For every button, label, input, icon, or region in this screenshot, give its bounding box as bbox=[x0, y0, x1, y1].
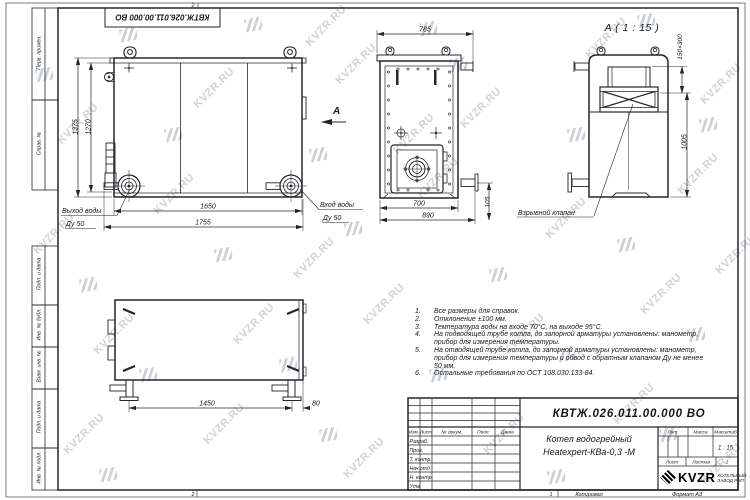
margin-podp1: Подп. и дата bbox=[37, 258, 43, 291]
row-utv: Утв. bbox=[410, 484, 422, 490]
svg-text:A: A bbox=[332, 106, 340, 117]
view-a-title: A ( 1 : 15 ) bbox=[604, 22, 660, 34]
mass-label: Масса bbox=[693, 430, 708, 436]
inlet-label: Вход воды Ду 50 bbox=[300, 189, 363, 223]
product-name-1: Котел водогрейный bbox=[546, 434, 632, 444]
dim-1005: 1005 bbox=[682, 134, 689, 150]
dim-785: 785 bbox=[419, 27, 431, 34]
sight-marks bbox=[394, 126, 442, 140]
svg-text:Вход воды: Вход воды bbox=[320, 201, 355, 209]
col-data: Дата bbox=[500, 430, 514, 436]
row-nachotd: Нач.отд. bbox=[410, 466, 432, 472]
front-view: 1375 1270 1650 1755 Выход воды Ду 50 bbox=[61, 47, 363, 231]
legs bbox=[110, 380, 301, 401]
valve-label: Взрывной клапан bbox=[517, 104, 633, 217]
outlet-label: Выход воды Ду 50 bbox=[61, 189, 130, 229]
row-tkontr: Т. контр. bbox=[410, 457, 432, 463]
sheet-label: Лист bbox=[665, 460, 678, 466]
side-view: 785 700 890 105 bbox=[377, 27, 493, 225]
drawing-sheet: KVZR.RUKVZR.RUKVZR.RUKVZR.RUKVZR.RUKVZR.… bbox=[0, 0, 750, 500]
lifting-lug-icon bbox=[124, 47, 296, 58]
note-item: 2.Отклонение ±100 мм. bbox=[415, 316, 711, 324]
front-dimensions: 1375 1270 1650 1755 bbox=[73, 58, 304, 231]
kvzr-logo-icon bbox=[660, 470, 676, 485]
dim-700: 700 bbox=[413, 201, 425, 208]
margin-perv: Перв. примен. bbox=[37, 35, 43, 69]
view-a: A ( 1 : 15 ) bbox=[517, 22, 691, 217]
note-item: 4.На подводящей трубе котла, до запорной… bbox=[415, 331, 711, 347]
svg-text:Выход воды: Выход воды bbox=[62, 207, 102, 215]
format-label: Формат А3 bbox=[672, 492, 703, 498]
row-nkontr: Н. контр. bbox=[410, 475, 433, 481]
svg-text:Взрывной клапан: Взрывной клапан bbox=[518, 209, 575, 217]
row-prov: Пров. bbox=[410, 448, 424, 454]
top-pipe-stub bbox=[461, 63, 473, 70]
dim-80: 80 bbox=[312, 401, 320, 408]
furnace-door bbox=[391, 145, 447, 193]
margin-inv-podl: Инв. № подл. bbox=[37, 451, 43, 483]
col-list: Лист bbox=[419, 430, 432, 436]
doc-number: КВТЖ.026.011.00.000 ВО bbox=[553, 408, 706, 420]
dim-105: 105 bbox=[485, 196, 492, 207]
margin-podp2: Подп. и дата bbox=[37, 401, 43, 434]
scale-value: 1 : 15 bbox=[718, 446, 734, 452]
view-a-dimensions: 150×300 1005 bbox=[652, 34, 691, 197]
drawing-linework: 2 2 1 Копировал Формат А3 КВТЖ.026.011.0… bbox=[0, 0, 750, 500]
dim-1270: 1270 bbox=[86, 119, 93, 135]
zone-bottom-right: 1 bbox=[550, 492, 553, 498]
dim-150x300: 150×300 bbox=[677, 34, 684, 60]
svg-text:Ду 50: Ду 50 bbox=[322, 215, 341, 222]
svg-text:Ду 50: Ду 50 bbox=[65, 221, 84, 228]
copied-label: Копировал bbox=[575, 492, 602, 498]
bottom-pipe-stub bbox=[461, 179, 475, 187]
col-dok: № докум. bbox=[441, 430, 462, 436]
margin-inv-dubl: Инв. № дубл. bbox=[37, 309, 43, 341]
technical-notes: 1.Все размеры для справок. 2.Отклонение … bbox=[415, 308, 711, 378]
doc-number-top: КВТЖ.026.011.00.000 ВО bbox=[115, 13, 210, 22]
explosion-valve bbox=[600, 67, 658, 112]
zone-bottom-left: 2 bbox=[191, 492, 195, 498]
side-dimensions: 785 700 890 105 bbox=[377, 27, 493, 225]
bottom-view: 1450 80 bbox=[108, 300, 320, 412]
brand-subtitle: КОТЕЛЬНЫЙ ЗАВОД РЭП bbox=[717, 473, 746, 483]
scale-label: Масштаб bbox=[714, 430, 737, 436]
col-izm: Изм. bbox=[409, 430, 419, 436]
lit-label: Лит. bbox=[666, 430, 678, 436]
dim-1450: 1450 bbox=[199, 401, 215, 408]
dim-1650: 1650 bbox=[200, 204, 216, 211]
note-item: 6.Остальные требования по ОСТ 108.030.13… bbox=[415, 370, 711, 378]
note-item: 1.Все размеры для справок. bbox=[415, 308, 711, 316]
note-item: 5.На отводящей трубе котла, до запорной … bbox=[415, 347, 711, 370]
brand-name: KVZR bbox=[678, 471, 715, 484]
side-lug bbox=[105, 72, 115, 82]
dim-1755: 1755 bbox=[195, 220, 211, 227]
col-podp: Подп. bbox=[477, 430, 490, 436]
sheet-frame: 2 2 1 Копировал Формат А3 КВТЖ.026.011.0… bbox=[6, 3, 745, 498]
sheets-value: 1 bbox=[726, 460, 729, 466]
sheets-label: Листов bbox=[691, 460, 710, 466]
margin-sprav: Справ. № bbox=[37, 131, 43, 155]
dim-890: 890 bbox=[422, 213, 434, 220]
row-razrab: Разраб. bbox=[410, 439, 429, 445]
view-arrow-A: A bbox=[322, 106, 346, 122]
corner-welds bbox=[123, 309, 299, 371]
margin-vzam: Взам. инв. № bbox=[37, 350, 43, 382]
factory-logo: KVZR КОТЕЛЬНЫЙ ЗАВОД РЭП bbox=[660, 466, 737, 489]
dim-1375: 1375 bbox=[73, 119, 80, 135]
product-name-2: Heatexpert-КВа-0,3 -М bbox=[543, 447, 635, 457]
center-marks bbox=[124, 64, 297, 73]
margin-columns: Перв. примен. Справ. № Подп. и дата Инв.… bbox=[32, 8, 58, 490]
